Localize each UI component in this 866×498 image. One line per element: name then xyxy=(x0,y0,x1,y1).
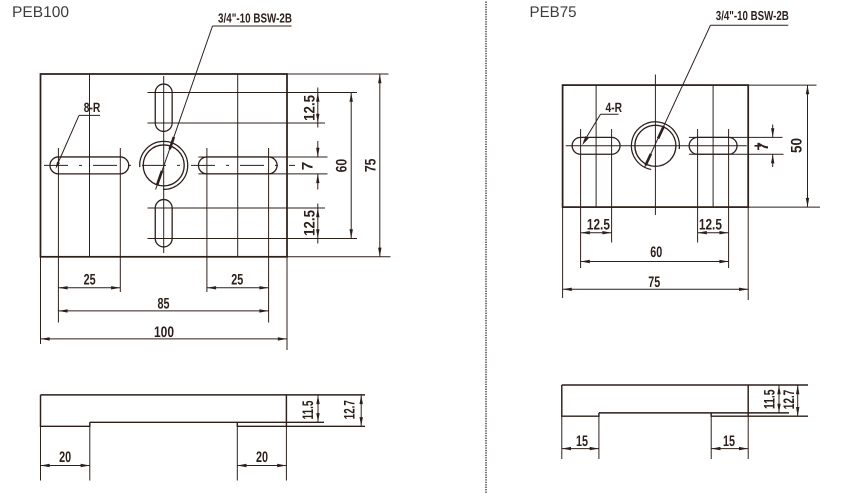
svg-text:100: 100 xyxy=(154,324,174,341)
svg-text:60: 60 xyxy=(334,159,351,173)
svg-text:4-R: 4-R xyxy=(606,100,623,115)
svg-text:25: 25 xyxy=(231,271,243,288)
svg-text:7: 7 xyxy=(300,162,317,171)
svg-text:12.7: 12.7 xyxy=(342,400,359,419)
svg-text:PEB100: PEB100 xyxy=(12,4,69,21)
svg-text:3/4"-10 BSW-2B: 3/4"-10 BSW-2B xyxy=(716,8,789,23)
svg-text:60: 60 xyxy=(650,244,662,261)
svg-text:20: 20 xyxy=(59,449,71,466)
svg-text:20: 20 xyxy=(256,449,268,466)
svg-text:PEB75: PEB75 xyxy=(530,4,577,21)
svg-text:12.5: 12.5 xyxy=(699,217,722,234)
svg-text:50: 50 xyxy=(788,138,805,153)
svg-text:11.5: 11.5 xyxy=(761,389,778,409)
svg-text:12.5: 12.5 xyxy=(301,210,318,236)
svg-text:15: 15 xyxy=(723,433,735,450)
svg-text:12.7: 12.7 xyxy=(781,390,798,410)
svg-text:7: 7 xyxy=(755,142,772,151)
svg-text:75: 75 xyxy=(648,274,660,291)
svg-text:25: 25 xyxy=(84,271,96,288)
svg-text:75: 75 xyxy=(363,158,380,172)
svg-text:15: 15 xyxy=(576,433,588,450)
svg-text:12.5: 12.5 xyxy=(587,217,610,234)
svg-text:11.5: 11.5 xyxy=(300,400,317,419)
svg-text:3/4"-10 BSW-2B: 3/4"-10 BSW-2B xyxy=(218,10,292,25)
svg-text:85: 85 xyxy=(158,295,170,312)
svg-text:8-R: 8-R xyxy=(84,100,101,115)
svg-text:12.5: 12.5 xyxy=(301,94,318,120)
